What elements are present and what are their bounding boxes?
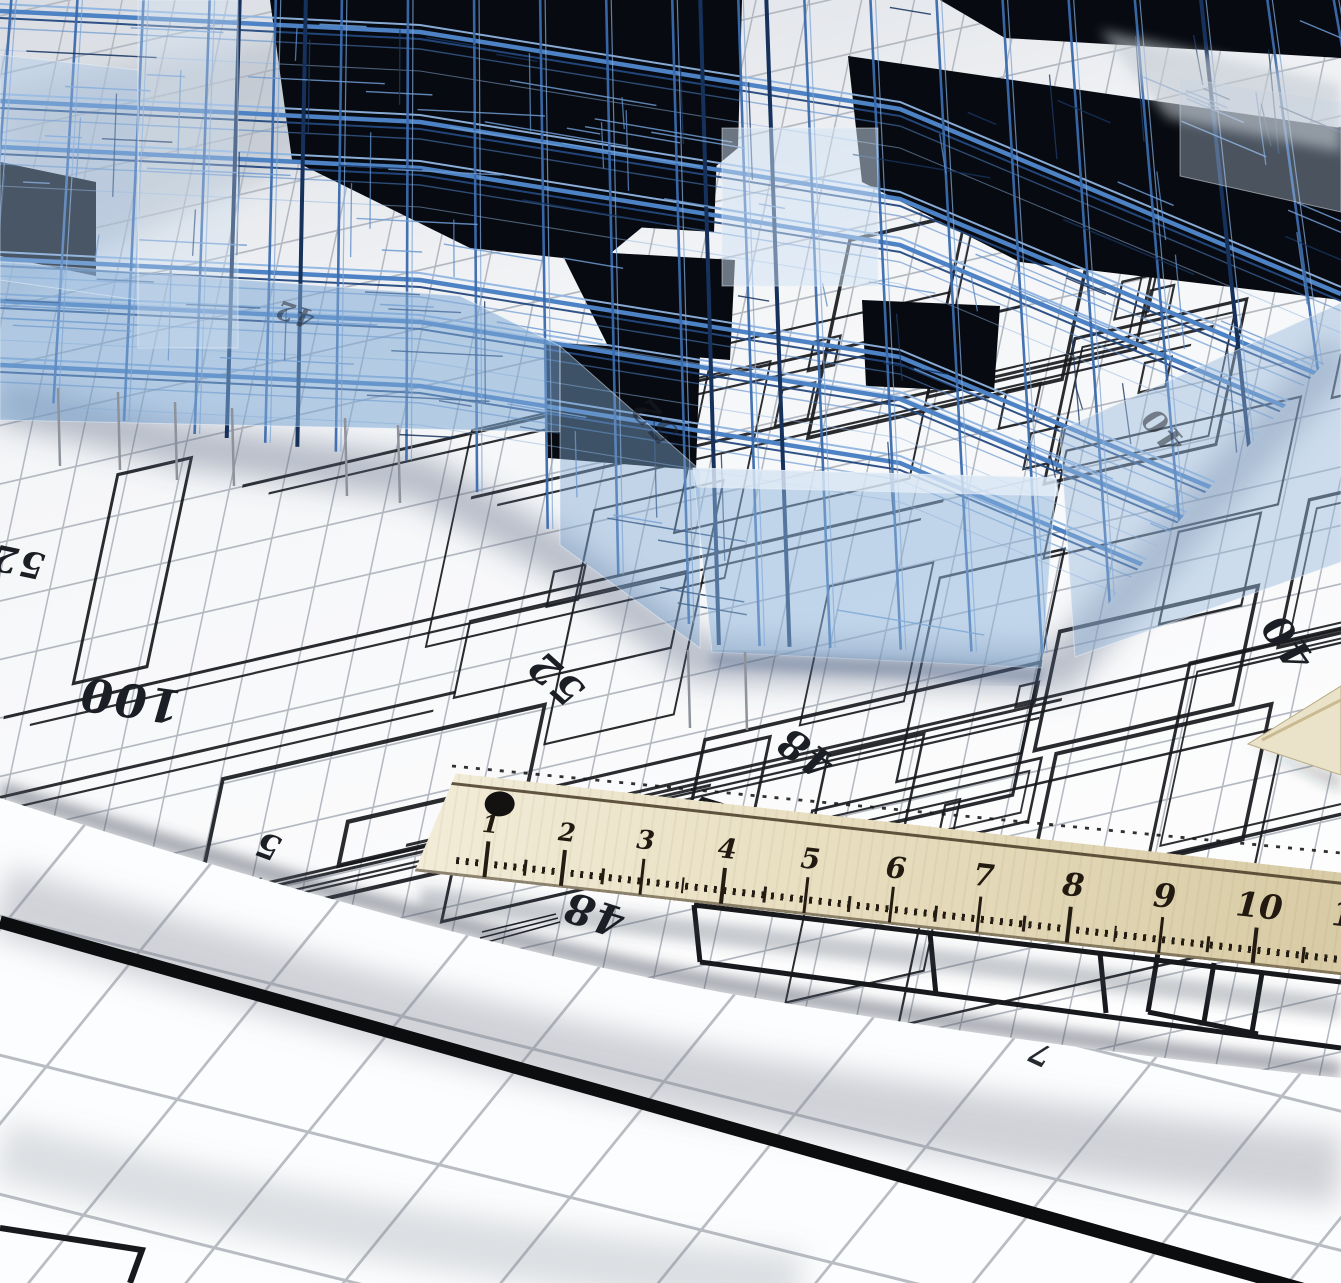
ruler-number: 1: [478, 809, 502, 839]
ruler-major-tick: [719, 868, 726, 904]
ruler-number: 2: [554, 816, 579, 847]
ruler-major-tick: [888, 887, 895, 923]
ruler-number: 10: [1230, 884, 1288, 928]
ruler-major-tick: [638, 859, 645, 895]
ruler-major-tick: [1157, 917, 1164, 953]
ruler-number: 8: [1057, 866, 1089, 905]
ruler-number: 6: [881, 849, 911, 885]
scene-svg: [0, 0, 1341, 1283]
ruler-major-tick: [975, 896, 982, 932]
ruler-number: 9: [1148, 876, 1181, 917]
blueprint-photo: 100525248485405240427 1234567891011: [0, 0, 1341, 1283]
ruler-major-tick: [483, 841, 490, 877]
ruler-major-tick: [1065, 907, 1072, 943]
ruler-number: 3: [633, 824, 659, 856]
ruler-major-tick: [559, 850, 566, 886]
ruler-number: 7: [968, 857, 999, 895]
ruler-major-tick: [802, 877, 809, 913]
ruler-number: 5: [796, 840, 825, 875]
ruler-number: 11: [1326, 893, 1341, 938]
ruler-major-tick: [1251, 927, 1258, 963]
ruler-number: 4: [713, 832, 740, 865]
